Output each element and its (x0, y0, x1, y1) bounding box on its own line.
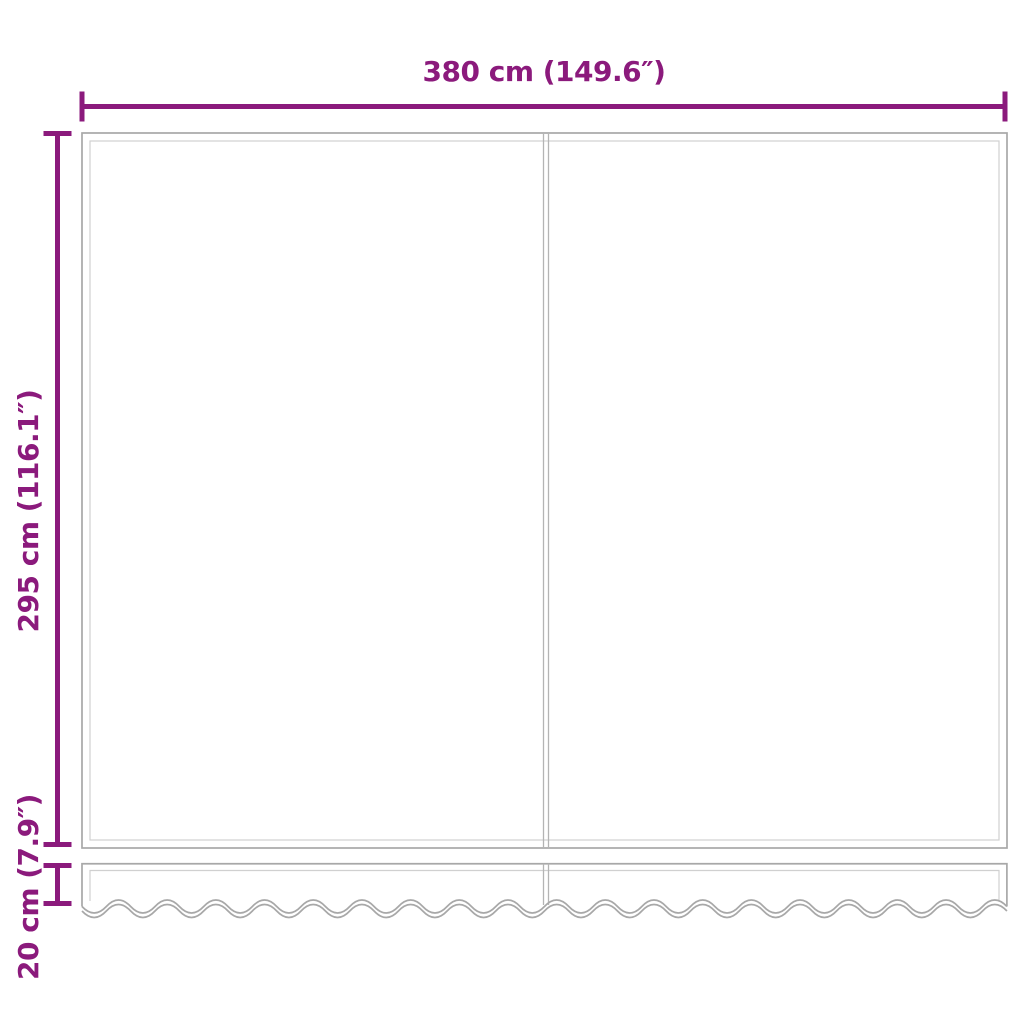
width-dimension: 380 cm (149.6″) (82, 55, 1005, 122)
fabric-main-panel (82, 133, 1007, 848)
valance-inner-line (90, 871, 999, 902)
awning-fabric-diagram-canvas: 380 cm (149.6″) 295 cm (116.1″) 20 cm (7… (0, 0, 1024, 1024)
valance-height-dimension: 20 cm (7.9″) (12, 794, 72, 980)
width-dimension-label: 380 cm (149.6″) (423, 55, 666, 88)
height-dimension: 295 cm (116.1″) (12, 133, 72, 845)
valance-strip (82, 864, 1007, 918)
product-dimension-diagram: 380 cm (149.6″) 295 cm (116.1″) 20 cm (7… (0, 0, 1024, 1024)
valance-height-dimension-label: 20 cm (7.9″) (12, 794, 45, 980)
fabric-main-panel-outline (82, 133, 1007, 848)
fabric-main-panel-inner-line (90, 141, 999, 840)
height-dimension-label: 295 cm (116.1″) (12, 390, 45, 633)
